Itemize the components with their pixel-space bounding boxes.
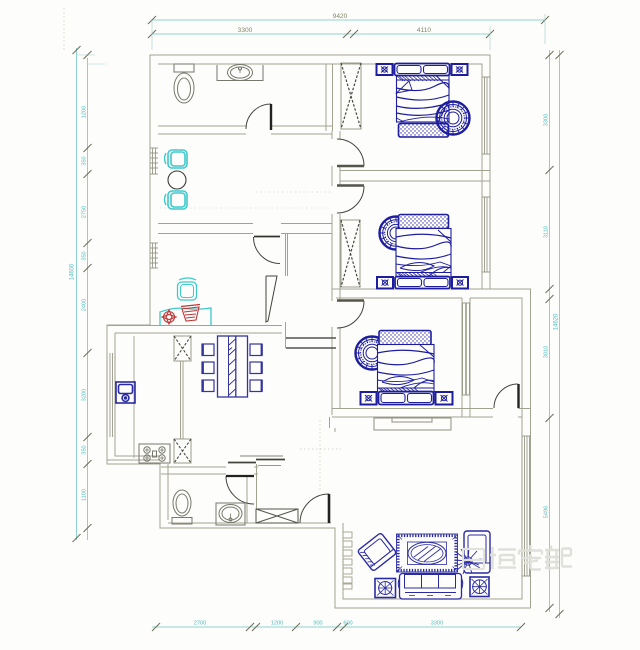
svg-text:2750: 2750 — [82, 206, 88, 218]
svg-text:2400: 2400 — [82, 299, 88, 311]
svg-text:14600: 14600 — [70, 263, 76, 280]
svg-text:1100: 1100 — [82, 489, 88, 501]
svg-text:9420: 9420 — [333, 13, 348, 20]
svg-text:3300: 3300 — [431, 621, 443, 627]
svg-text:3300: 3300 — [238, 27, 253, 34]
svg-text:14620: 14620 — [554, 313, 560, 330]
svg-text:900: 900 — [313, 621, 322, 627]
svg-text:3110: 3110 — [544, 226, 550, 238]
svg-text:1200: 1200 — [271, 621, 283, 627]
svg-text:4110: 4110 — [417, 27, 432, 34]
svg-text:350: 350 — [82, 156, 88, 165]
svg-text:3010: 3010 — [544, 346, 550, 358]
svg-text:5490: 5490 — [544, 506, 550, 518]
svg-text:3300: 3300 — [544, 114, 550, 126]
svg-text:600: 600 — [343, 621, 352, 627]
svg-text:350: 350 — [82, 251, 88, 260]
svg-text:2700: 2700 — [194, 621, 206, 627]
svg-text:1200: 1200 — [82, 106, 88, 118]
svg-text:350: 350 — [82, 445, 88, 454]
svg-text:3200: 3200 — [82, 389, 88, 401]
